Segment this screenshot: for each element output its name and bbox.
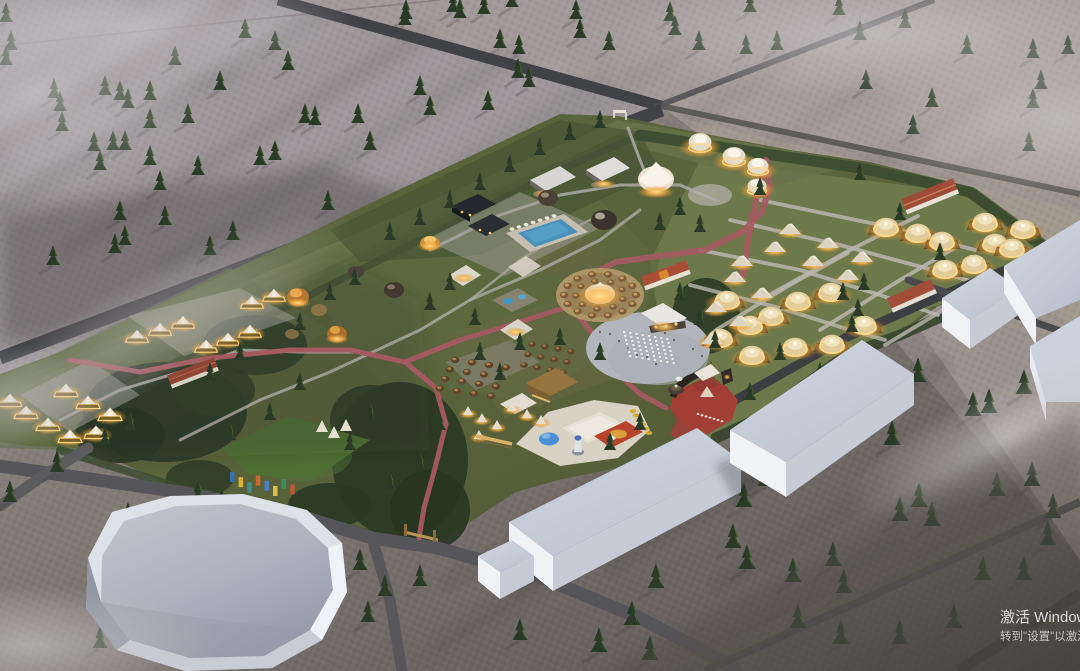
svg-text:激活 Windows: 激活 Windows	[1000, 609, 1080, 626]
svg-text:转到"设置"以激活 Windows。: 转到"设置"以激活 Windows。	[1000, 629, 1080, 643]
